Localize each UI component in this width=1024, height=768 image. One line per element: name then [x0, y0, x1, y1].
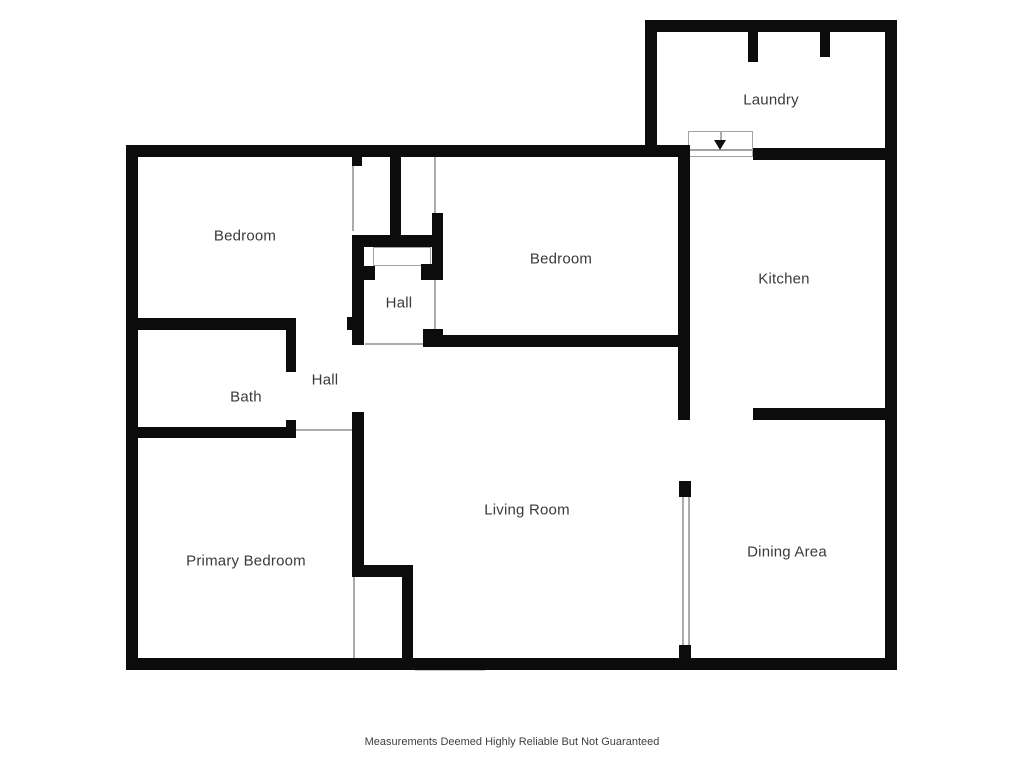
room-label-laundry: Laundry — [743, 92, 799, 109]
wall-segment — [126, 145, 690, 157]
wall-segment — [402, 577, 413, 670]
wall-segment — [390, 145, 401, 242]
room-label-hall-upper: Hall — [386, 295, 413, 312]
wall-segment — [425, 335, 690, 347]
wall-segment — [364, 266, 375, 280]
wall-segment — [645, 20, 657, 157]
room-label-dining-area: Dining Area — [747, 544, 827, 561]
wall-segment — [678, 145, 690, 420]
wall-segment — [753, 148, 885, 160]
disclaimer-text: Measurements Deemed Highly Reliable But … — [365, 736, 660, 748]
room-label-hall-lower: Hall — [312, 372, 339, 389]
wall-segment — [126, 145, 138, 670]
door-marker — [688, 150, 753, 157]
wall-segment — [352, 235, 364, 345]
floor-plan: Laundry Bedroom Bedroom Kitchen Hall Hal… — [0, 0, 1024, 768]
opening-line — [434, 157, 436, 213]
opening-line — [353, 577, 355, 658]
wall-segment — [753, 408, 897, 420]
wall-segment — [126, 427, 296, 438]
opening-line — [296, 429, 352, 431]
wall-segment — [126, 318, 296, 330]
room-label-bedroom-left: Bedroom — [214, 228, 276, 245]
wall-segment — [748, 32, 758, 62]
wall-segment — [421, 264, 432, 280]
opening-line — [682, 497, 684, 645]
room-label-bath: Bath — [230, 389, 262, 406]
opening-line — [352, 166, 354, 231]
room-label-kitchen: Kitchen — [758, 271, 809, 288]
room-label-bedroom-middle: Bedroom — [530, 251, 592, 268]
wall-segment — [820, 32, 830, 57]
wall-segment — [679, 481, 691, 497]
opening-line — [365, 343, 425, 345]
opening-line — [688, 497, 690, 645]
room-label-living-room: Living Room — [484, 502, 570, 519]
room-label-primary-bedroom: Primary Bedroom — [186, 553, 306, 570]
wall-segment — [885, 20, 897, 670]
wall-segment — [126, 658, 897, 670]
wall-segment — [352, 157, 362, 166]
opening-line — [434, 280, 436, 330]
wall-segment — [645, 20, 897, 32]
wall-segment — [432, 213, 443, 280]
wall-segment — [352, 412, 364, 572]
step-down-arrow-icon — [714, 140, 726, 150]
